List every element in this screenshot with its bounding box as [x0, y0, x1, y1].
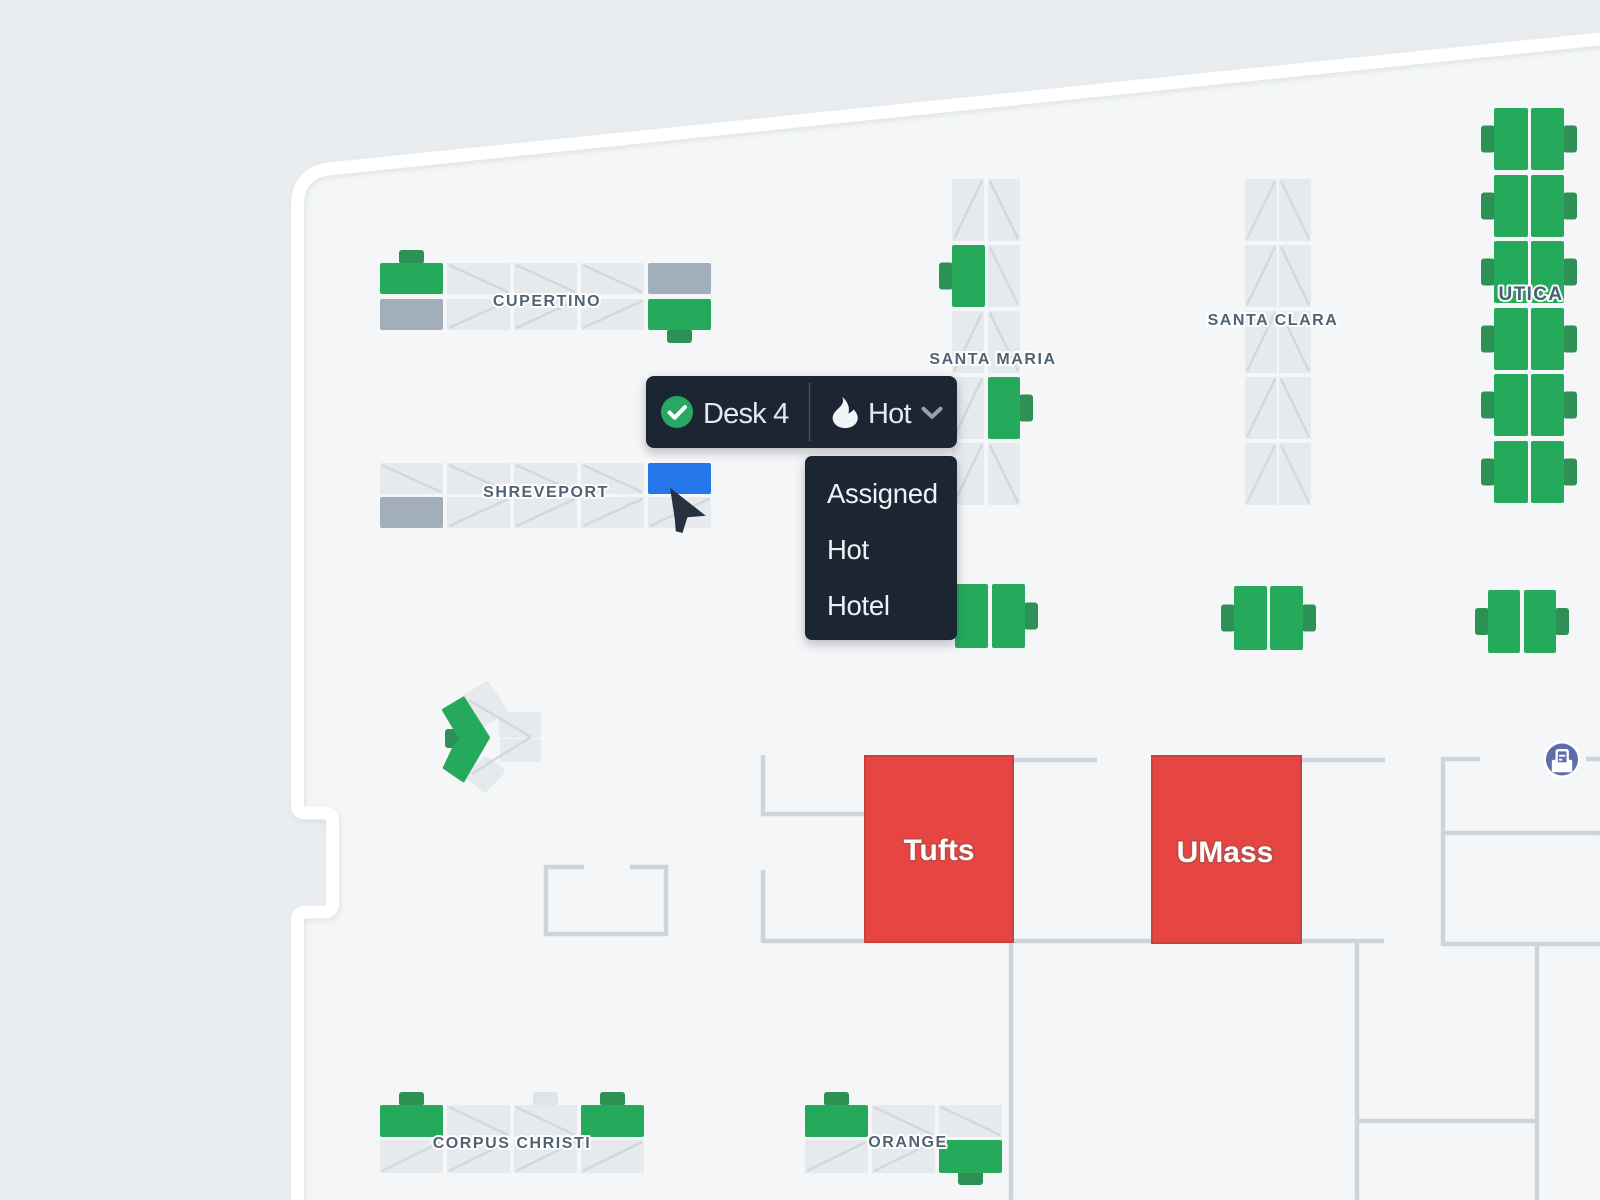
- svg-text:Hotel: Hotel: [827, 590, 890, 621]
- svg-text:CORPUS CHRISTI: CORPUS CHRISTI: [433, 1135, 592, 1152]
- svg-text:SANTA CLARA: SANTA CLARA: [1208, 312, 1339, 329]
- svg-text:Desk 4: Desk 4: [703, 398, 789, 430]
- svg-text:ORANGE: ORANGE: [868, 1134, 948, 1151]
- svg-text:UTICA: UTICA: [1498, 284, 1563, 305]
- svg-text:Hot: Hot: [868, 398, 911, 430]
- svg-text:CUPERTINO: CUPERTINO: [493, 293, 601, 310]
- svg-text:Tufts: Tufts: [903, 834, 974, 867]
- svg-text:SHREVEPORT: SHREVEPORT: [483, 484, 609, 501]
- svg-text:UMass: UMass: [1177, 836, 1274, 869]
- svg-text:Hot: Hot: [827, 534, 870, 565]
- svg-text:SANTA MARIA: SANTA MARIA: [929, 351, 1056, 368]
- svg-text:Assigned: Assigned: [827, 478, 938, 509]
